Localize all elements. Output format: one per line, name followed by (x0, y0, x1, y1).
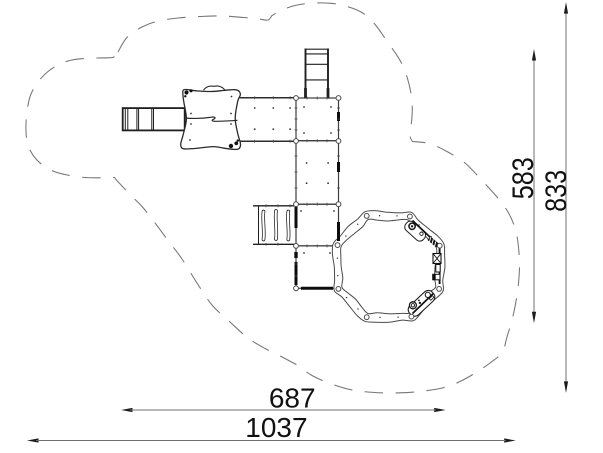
svg-text:583: 583 (506, 157, 540, 199)
svg-text:1037: 1037 (245, 412, 307, 443)
svg-text:687: 687 (269, 383, 316, 414)
svg-text:833: 833 (539, 170, 573, 212)
